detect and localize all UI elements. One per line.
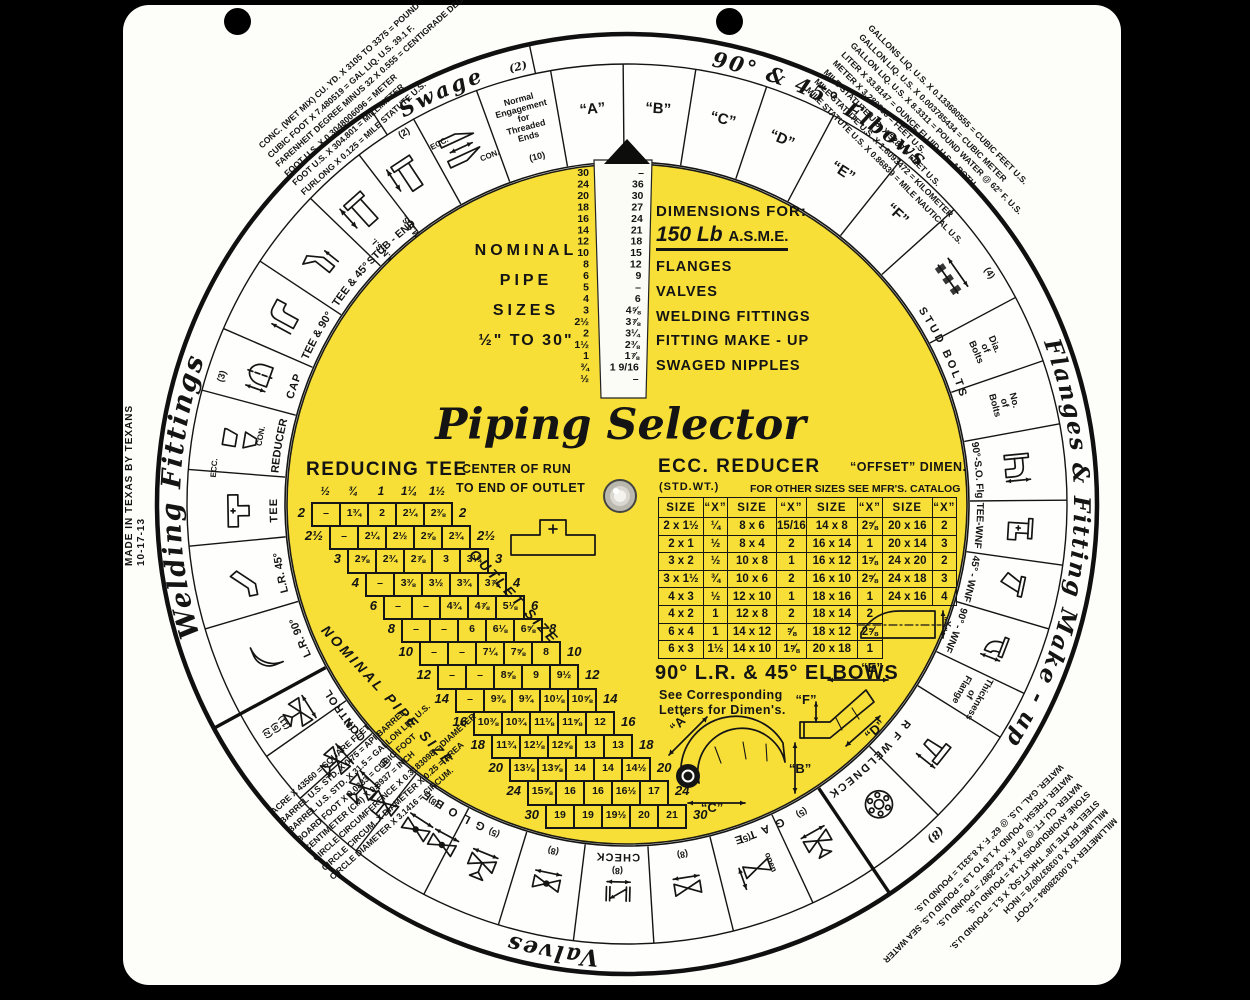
piping-selector-scan: Welding FittingsSwage(2)90° & 45° Elbows… (0, 0, 1250, 1000)
ecc-table-cell: 14 x 12 (728, 623, 777, 641)
ecc-table-cell: 8 x 6 (728, 518, 777, 536)
cell-label-ecc: ECC. (209, 458, 220, 478)
nominal-pipe-sizes-block: NOMINAL PIPE SIZES ½" TO 30" (448, 236, 604, 356)
tee-table-cell: – (429, 618, 459, 643)
tee-table-cell: 15⅝ (527, 780, 557, 805)
tee-table-cell: 2⅞ (403, 548, 433, 573)
tee-table-cell: 12 (585, 711, 615, 736)
tee-table-cell: 8 (531, 641, 561, 666)
strip-window-value: 1 9/16 (610, 362, 639, 374)
tee-table-cell: 2½ (385, 525, 415, 550)
pipe-size-scale-value: ¾ (580, 362, 590, 374)
dim-item-flanges: FLANGES (656, 255, 811, 280)
ecc-table-cell: 1⅝ (857, 553, 882, 571)
tee-table-cell: 19½ (601, 804, 631, 829)
tee-table-cell: – (447, 641, 477, 666)
tee-table-cell: 11⅝ (557, 711, 587, 736)
tee-table-cell: 16 (583, 780, 613, 805)
ecc-table-cell (932, 605, 956, 623)
tee-table-cell: – (437, 664, 467, 689)
ecc-table-header: SIZE (882, 498, 932, 518)
ecc-table-cell: 1 (704, 605, 728, 623)
ecc-table-cell (882, 623, 932, 641)
strip-window-value: 27 (631, 201, 643, 213)
elbows-note2: Letters for Dimen's. (659, 703, 786, 717)
ecc-table-cell: 24 x 18 (882, 570, 932, 588)
tee-table-cell: 12⅛ (519, 734, 549, 759)
tee-col-header: 1¼ (395, 486, 423, 498)
tee-row-label-left: 20 (475, 760, 503, 775)
ecc-table-cell: 16 x 14 (806, 535, 857, 553)
tee-row-label-left: 3 (313, 551, 341, 566)
tee-table-cell: 7⅝ (503, 641, 533, 666)
tee-table-cell: 3 (431, 548, 461, 573)
spec-150lb: 150 Lb (656, 223, 723, 246)
ecc-table-row: 6 x 31½14 x 101⅝20 x 181 (659, 641, 957, 659)
ecc-table-cell: 20 x 16 (882, 518, 932, 536)
ecc-table-cell: 1 (857, 588, 882, 606)
ecc-table-cell: 24 x 16 (882, 588, 932, 606)
ecc-table-cell: 4 x 3 (659, 588, 704, 606)
ecc-table-cell: 2⅝ (857, 518, 882, 536)
ecc-table-cell: ½ (704, 535, 728, 553)
tee-table-cell: 2¼ (395, 502, 425, 527)
ecc-table-row: 2 x 1½¼8 x 615/1614 x 82⅝20 x 162 (659, 518, 957, 536)
ecc-reducer-table: SIZE“X”SIZE“X”SIZE“X”SIZE“X”2 x 1½¼8 x 6… (658, 497, 957, 659)
reducing-tee-sub1: CENTER OF RUN (462, 462, 571, 476)
ecc-table-row: 2 x 1½8 x 4216 x 14120 x 143 (659, 535, 957, 553)
ecc-table-cell: 20 x 18 (806, 641, 857, 659)
cell-label-n8: (8) (676, 849, 688, 861)
tee-row-label-left: 18 (457, 737, 485, 752)
strip-window-value: 1⅞ (625, 350, 641, 362)
dim-item-valves: VALVES (656, 280, 811, 305)
ecc-table-cell: 1 (777, 553, 807, 571)
strip-window-value: 12 (630, 259, 642, 271)
reducing-tee-sub2: TO END OF OUTLET (456, 481, 585, 495)
ecc-table-cell: 18 x 14 (806, 605, 857, 623)
tee-row-label-right: 2 (459, 505, 466, 520)
ecc-table-cell: 12 x 8 (728, 605, 777, 623)
tee-col-header: ½ (311, 486, 339, 498)
ecc-table-row: 3 x 2½10 x 8116 x 121⅝24 x 202 (659, 553, 957, 571)
tee-row-label-right: 24 (675, 783, 689, 798)
tee-table-cell: – (419, 641, 449, 666)
ring-divider (970, 500, 1067, 501)
ecc-table-cell: 4 x 2 (659, 605, 704, 623)
tee-table-cell: 2⅝ (347, 548, 377, 573)
tee-table-cell: – (401, 618, 431, 643)
tee-table-cell: – (455, 688, 485, 713)
tee-table-cell: 10¾ (501, 711, 531, 736)
dim-item-swaged-nipples: SWAGED NIPPLES (656, 354, 811, 379)
ecc-table-cell: 2 (932, 518, 956, 536)
ecc-table-cell: 1 (777, 588, 807, 606)
ecc-table-cell: 2 x 1 (659, 535, 704, 553)
ecc-table-cell: 1½ (704, 641, 728, 659)
elbows-note1: See Corresponding (659, 688, 783, 702)
tee-table-cell: 11⅛ (529, 711, 559, 736)
tee-row-label-left: 12 (403, 667, 431, 682)
ecc-table-header: “X” (932, 498, 956, 518)
reducing-tee-title: REDUCING TEE (306, 459, 468, 481)
tee-table-cell: 19 (573, 804, 603, 829)
ecc-table-cell: 12 x 10 (728, 588, 777, 606)
tee-col-header: 1 (367, 486, 395, 498)
nominal-line3: SIZES (448, 296, 604, 326)
tee-table-cell: 1¾ (339, 502, 369, 527)
tee-table-cell: 2⅝ (413, 525, 443, 550)
tee-table-cell: 13 (603, 734, 633, 759)
ecc-table-cell: ½ (704, 553, 728, 571)
strip-window-value: 30 (632, 190, 644, 202)
ecc-reducer-title: ECC. REDUCER (658, 456, 821, 478)
ecc-table-cell: 8 x 4 (728, 535, 777, 553)
strip-window-value: 15 (630, 247, 642, 259)
ecc-table-cell: 1 (857, 535, 882, 553)
ecc-table-cell: 2⅝ (857, 623, 882, 641)
strip-window-value: 3¼ (625, 327, 641, 339)
tee-table-cell: – (383, 595, 413, 620)
dimensions-for-block: DIMENSIONS FOR: 150 Lb A.S.M.E. FLANGES … (656, 203, 811, 379)
ecc-table-cell: ½ (704, 588, 728, 606)
tee-table-cell: 14 (565, 757, 595, 782)
ecc-table-row: 4 x 2112 x 8218 x 142 (659, 605, 957, 623)
ecc-table-cell: ¾ (704, 570, 728, 588)
tee-table-cell: 3½ (421, 572, 451, 597)
tee-table-cell: 21 (657, 804, 687, 829)
tee-table-cell: 2⅜ (423, 502, 453, 527)
ecc-table-header: SIZE (659, 498, 704, 518)
ecc-table-cell: 2 x 1½ (659, 518, 704, 536)
ecc-table-cell: 2⅝ (857, 570, 882, 588)
tee-table-cell: 10⅜ (473, 711, 503, 736)
strip-window-value: – (633, 373, 639, 385)
tee-table-cell: 10⅝ (567, 688, 597, 713)
pipe-size-scale-value: 18 (577, 201, 589, 213)
elbow-dim-label: “F” (796, 692, 817, 707)
ecc-table-cell: 16 x 10 (806, 570, 857, 588)
strip-window-value: 24 (631, 213, 643, 225)
letter-cell-a: “A” (579, 99, 606, 118)
dimensions-heading: DIMENSIONS FOR: (656, 203, 811, 220)
tee-table-cell: 13⅝ (537, 757, 567, 782)
ecc-table-cell: ¼ (704, 518, 728, 536)
ecc-table-cell: 2 (777, 605, 807, 623)
dim-item-fitting-make-up: FITTING MAKE - UP (656, 329, 811, 354)
strip-window-value: 36 (632, 178, 644, 190)
ecc-table-cell: 2 (932, 553, 956, 571)
pipe-size-scale-value: 14 (577, 224, 589, 236)
ecc-table-cell (932, 641, 956, 659)
tee-table-cell: 14 (593, 757, 623, 782)
spec-asme: A.S.M.E. (728, 228, 788, 245)
ecc-table-cell: ⅝ (777, 623, 807, 641)
made-in-credit: MADE IN TEXAS BY TEXANS 10-17-13 (124, 405, 148, 566)
tee-table-cell: – (365, 572, 395, 597)
tee-table-cell: 6⅛ (485, 618, 515, 643)
tee-col-header: 1½ (423, 486, 451, 498)
ecc-table-cell: 24 x 20 (882, 553, 932, 571)
nominal-line1: NOMINAL (448, 236, 604, 266)
ecc-table-row: 3 x 1½¾10 x 6216 x 102⅝24 x 183 (659, 570, 957, 588)
pipe-size-scale-value: 24 (577, 178, 589, 190)
ecc-table-cell: 1 (857, 641, 882, 659)
date-code: 10-17-13 (136, 405, 148, 566)
tee-table-cell: 3¾ (449, 572, 479, 597)
pipe-size-scale-value: 16 (577, 213, 589, 225)
tee-table-cell: 9⅜ (483, 688, 513, 713)
tee-table-cell: 19 (545, 804, 575, 829)
tee-row-label-left: 16 (439, 714, 467, 729)
elbow-dim-label: “B” (789, 761, 811, 776)
ecc-table-cell: 3 x 2 (659, 553, 704, 571)
tee-table-cell: 16 (555, 780, 585, 805)
strip-window-value: 3⅞ (625, 316, 641, 328)
strip-window-value: 18 (631, 236, 643, 248)
ecc-table-cell (882, 605, 932, 623)
tee-table-cell: 10⅛ (539, 688, 569, 713)
tee-table-cell: 4⅞ (467, 595, 497, 620)
tee-table-cell: 7¼ (475, 641, 505, 666)
ecc-table-cell: 2 (777, 535, 807, 553)
tee-table-cell: 9½ (549, 664, 579, 689)
strip-window-value: 6 (635, 293, 641, 305)
tee-row-label-right: 10 (567, 644, 581, 659)
ecc-table-header: SIZE (806, 498, 857, 518)
ecc-table-header: “X” (777, 498, 807, 518)
tee-row-label-right: 16 (621, 714, 635, 729)
strip-window-value: 9 (635, 270, 641, 282)
ecc-table-cell: 3 (932, 570, 956, 588)
tee-table-cell: 9 (521, 664, 551, 689)
strip-window-value: 2⅜ (625, 339, 641, 351)
ecc-table-cell: 6 x 3 (659, 641, 704, 659)
ecc-table-cell: 2 (857, 605, 882, 623)
tee-table-cell: 6 (457, 618, 487, 643)
tee-table-cell: 13 (575, 734, 605, 759)
tee-row-label-right: 18 (639, 737, 653, 752)
tee-row-label-left: 8 (367, 621, 395, 636)
tee-table-cell: 12⅝ (547, 734, 577, 759)
ecc-table-header: “X” (857, 498, 882, 518)
strip-window-value: – (638, 167, 644, 179)
tee-table-cell: 14½ (621, 757, 651, 782)
tee-table-cell: 3⅜ (393, 572, 423, 597)
spec-150lb-asme: 150 Lb A.S.M.E. (656, 223, 788, 251)
tee-row-label-left: 14 (421, 691, 449, 706)
tee-row-label-left: 4 (331, 575, 359, 590)
cell-label-n8: (8) (612, 866, 623, 876)
ecc-table-cell: 3 (932, 535, 956, 553)
product-title: Piping Selector (398, 400, 843, 450)
tee-row-label-right: 3 (495, 551, 502, 566)
ecc-table-cell (932, 623, 956, 641)
ecc-table-cell: 10 x 8 (728, 553, 777, 571)
pipe-size-scale-value: 20 (577, 190, 589, 202)
strip-window-value: – (635, 282, 641, 294)
tee-table-cell: 4¾ (439, 595, 469, 620)
nominal-line2: PIPE (448, 266, 604, 296)
tee-row-label-left: 6 (349, 598, 377, 613)
tee-row-label-right: 20 (657, 760, 671, 775)
tee-table-cell: 2¾ (441, 525, 471, 550)
tee-table-cell: – (411, 595, 441, 620)
pipe-size-scale-value: 30 (577, 167, 589, 179)
ecc-table-cell: 10 x 6 (728, 570, 777, 588)
tee-table-cell: 2 (367, 502, 397, 527)
ecc-table-header: SIZE (728, 498, 777, 518)
ecc-table-header: “X” (704, 498, 728, 518)
ecc-table-cell: 6 x 4 (659, 623, 704, 641)
strip-window-value: 4⅝ (626, 304, 642, 316)
tee-table-cell: 16½ (611, 780, 641, 805)
strip-window-value: 21 (631, 224, 643, 236)
ecc-table-cell (882, 641, 932, 659)
dim-item-welding-fittings: WELDING FITTINGS (656, 305, 811, 330)
tee-table-cell: 2¼ (357, 525, 387, 550)
tee-table-cell: 20 (629, 804, 659, 829)
pipe-size-scale-value: ½ (580, 373, 589, 385)
tee-row-label-left: 30 (511, 807, 539, 822)
ecc-table-cell: 1⅝ (777, 641, 807, 659)
tee-table-cell: 13⅛ (509, 757, 539, 782)
tee-table-cell: 2¾ (375, 548, 405, 573)
tee-row-label-left: 24 (493, 783, 521, 798)
ecc-reducer-title2: “OFFSET” DIMEN. (850, 460, 967, 474)
ecc-table-cell: 15/16 (777, 518, 807, 536)
tee-table-cell: – (311, 502, 341, 527)
ecc-reducer-sub2: FOR OTHER SIZES SEE MFR'S. CATALOG (750, 483, 960, 495)
ecc-table-cell: 18 x 16 (806, 588, 857, 606)
tee-row-label-right: 30 (693, 807, 707, 822)
tee-table-cell: 8⅝ (493, 664, 523, 689)
ecc-table-cell: 14 x 10 (728, 641, 777, 659)
tee-table-cell: – (465, 664, 495, 689)
ecc-reducer-sub1: (STD.WT.) (659, 481, 719, 493)
arc-label-check: CHECK (595, 850, 640, 863)
ecc-table-cell: 18 x 12 (806, 623, 857, 641)
center-grommet (604, 480, 636, 512)
letter-cell-b: “B” (645, 99, 672, 118)
tee-col-header: ¾ (339, 486, 367, 498)
ecc-table-cell: 4 (932, 588, 956, 606)
made-in-text: MADE IN TEXAS BY TEXANS (124, 405, 136, 566)
ecc-table-row: 4 x 3½12 x 10118 x 16124 x 164 (659, 588, 957, 606)
tee-row-label-right: 14 (603, 691, 617, 706)
tee-row-label-left: 10 (385, 644, 413, 659)
ecc-table-row: 6 x 4114 x 12⅝18 x 122⅝ (659, 623, 957, 641)
nominal-line4: ½" TO 30" (448, 326, 604, 356)
ecc-table-cell: 3 x 1½ (659, 570, 704, 588)
tee-row-label-right: 2½ (477, 528, 495, 543)
tee-row-label-right: 12 (585, 667, 599, 682)
ecc-table-cell: 1 (704, 623, 728, 641)
tee-table-cell: 17 (639, 780, 669, 805)
tee-table-cell: 9¾ (511, 688, 541, 713)
tee-row-label-left: 2 (277, 505, 305, 520)
tee-row-label-left: 2½ (295, 528, 323, 543)
ecc-table-cell: 14 x 8 (806, 518, 857, 536)
elbows-section-title: 90° L.R. & 45° ELBOWS (655, 662, 899, 685)
tee-table-cell: – (329, 525, 359, 550)
tee-table-cell: 11¾ (491, 734, 521, 759)
ecc-table-cell: 2 (777, 570, 807, 588)
ecc-table-cell: 16 x 12 (806, 553, 857, 571)
ecc-table-cell: 20 x 14 (882, 535, 932, 553)
